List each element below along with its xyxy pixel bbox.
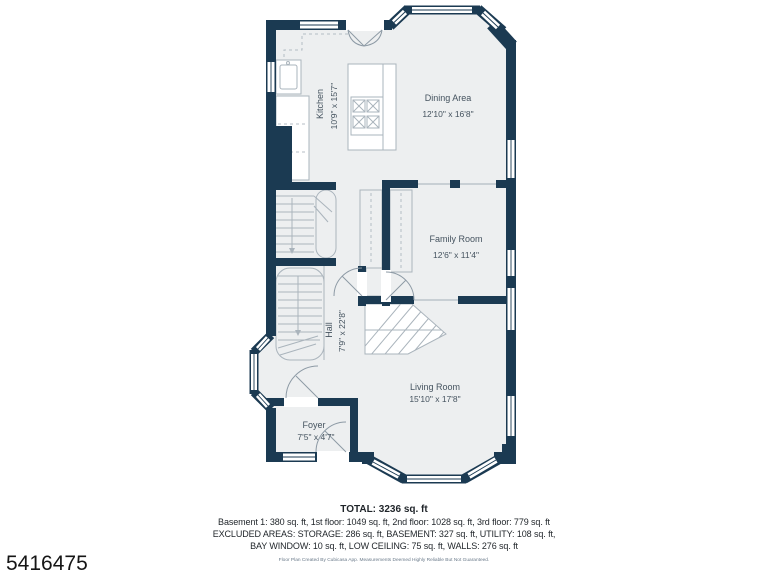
dining-label: Dining Area <box>425 93 472 103</box>
kitchen-dims: 10'9" x 15'7" <box>329 83 339 130</box>
living-label: Living Room <box>410 382 460 392</box>
excluded-areas-text: EXCLUDED AREAS: STORAGE: 286 sq. ft, BAS… <box>213 529 556 539</box>
floor-plan-canvas: Kitchen 10'9" x 15'7" Dining Area 12'10"… <box>0 0 768 576</box>
area-summary: TOTAL: 3236 sq. ft Basement 1: 380 sq. f… <box>213 504 556 563</box>
plan-id: 5416475 <box>6 552 88 575</box>
hall-dims: 7'9" x 22'8" <box>337 310 347 352</box>
floor-plan-page: Kitchen 10'9" x 15'7" Dining Area 12'10"… <box>0 0 768 576</box>
excluded-areas-text-2: BAY WINDOW: 10 sq. ft, LOW CEILING: 75 s… <box>250 541 518 551</box>
floors-area-text: Basement 1: 380 sq. ft, 1st floor: 1049 … <box>218 517 550 527</box>
hall-label: Hall <box>324 322 334 338</box>
family-label: Family Room <box>429 234 482 244</box>
dining-dims: 12'10" x 16'8" <box>422 109 473 119</box>
family-dims: 12'6" x 11'4" <box>433 250 479 260</box>
total-area-text: TOTAL: 3236 sq. ft <box>340 504 428 515</box>
foyer-dims: 7'5" x 4'7" <box>297 432 334 442</box>
foyer-label: Foyer <box>302 420 325 430</box>
living-dims: 15'10" x 17'8" <box>409 394 460 404</box>
kitchen-label: Kitchen <box>315 89 325 119</box>
disclaimer-text: Floor Plan Created By Cubicasa App. Meas… <box>279 557 490 563</box>
